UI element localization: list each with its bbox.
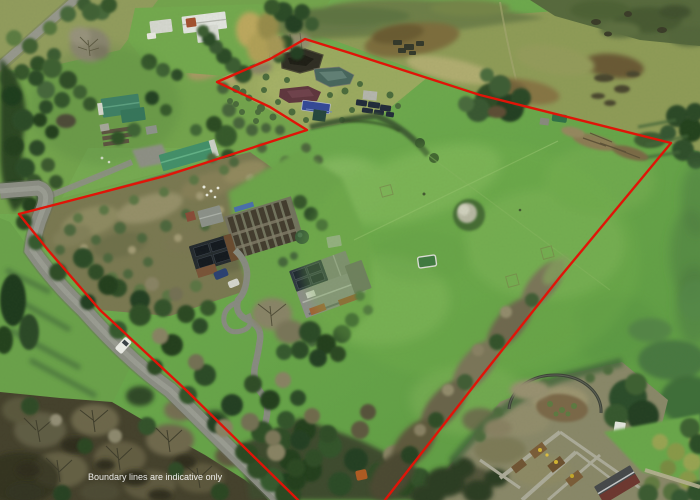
- svg-text:Boundary lines are indicative: Boundary lines are indicative only: [88, 472, 223, 482]
